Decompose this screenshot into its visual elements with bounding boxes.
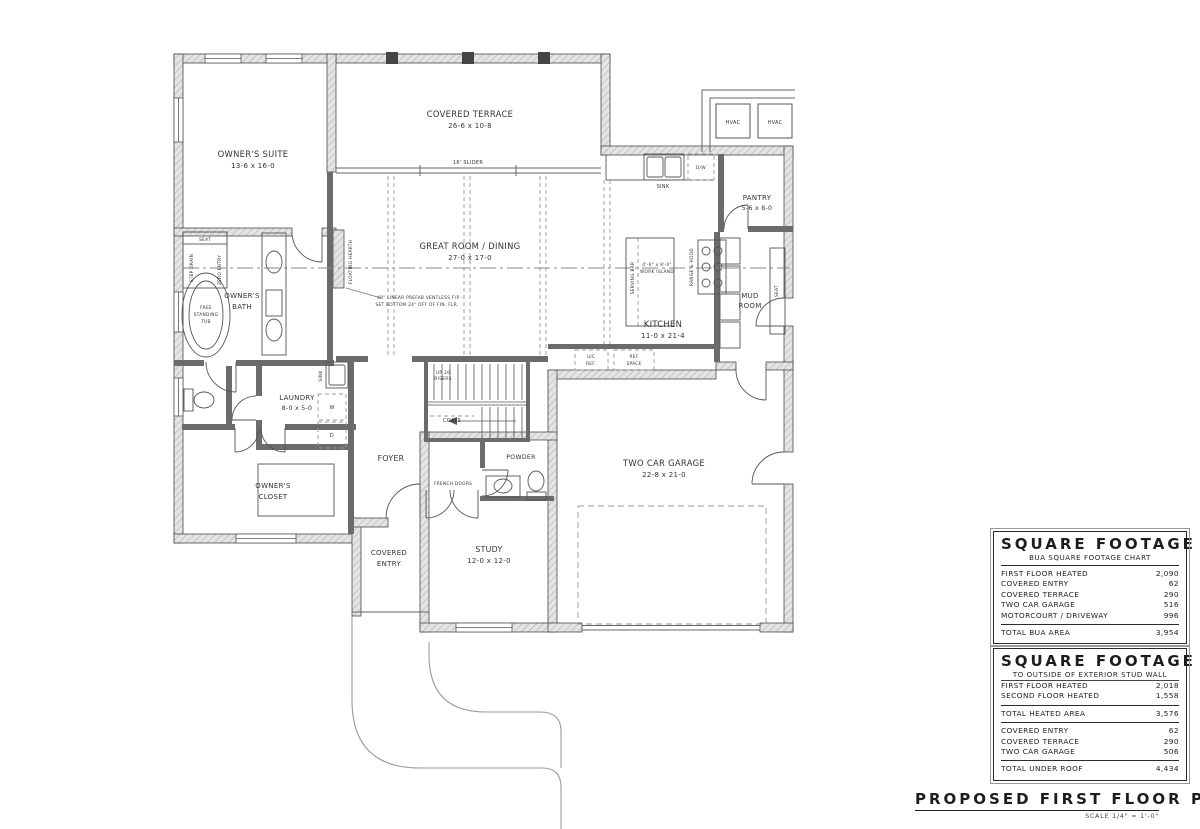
table-row: FIRST FLOOR HEATED 2,018 bbox=[1001, 681, 1179, 691]
mud-seat-label: SEAT bbox=[774, 285, 780, 297]
covered-entry-label-2: ENTRY bbox=[377, 560, 402, 568]
powder-label: POWDER bbox=[506, 454, 536, 461]
title-block: PROPOSED FIRST FLOOR PLAN SCALE 1/4" = 1… bbox=[915, 790, 1159, 820]
covered-terrace-dims: 26-6 x 10-8 bbox=[448, 122, 492, 130]
row-value: 996 bbox=[1164, 611, 1179, 621]
kitchen-dims: 11-0 x 21-4 bbox=[641, 332, 685, 340]
owners-suite-dims: 13-6 x 16-0 bbox=[231, 162, 275, 170]
row-label: FIRST FLOOR HEATED bbox=[1001, 569, 1088, 579]
table-rule bbox=[1001, 565, 1179, 566]
mud-room-label-2: ROOM bbox=[738, 302, 761, 310]
row-label: COVERED TERRACE bbox=[1001, 590, 1079, 600]
owners-bath-label-1: OWNER'S bbox=[224, 292, 260, 300]
step-drain-label: STEP DRAIN bbox=[189, 254, 195, 283]
stud-square-footage-table: SQUARE FOOTAGE TO OUTSIDE OF EXTERIOR ST… bbox=[993, 648, 1187, 781]
kitchen-sink-label: SINK bbox=[657, 184, 670, 190]
garage-dims: 22-8 x 21-0 bbox=[642, 471, 686, 479]
table-row: MOTORCOURT / DRIVEWAY 996 bbox=[1001, 611, 1179, 621]
work-island-label: WORK ISLAND bbox=[640, 269, 674, 275]
row-label: COVERED ENTRY bbox=[1001, 579, 1069, 589]
row-label: SECOND FLOOR HEATED bbox=[1001, 691, 1099, 701]
covered-entry-label-1: COVERED bbox=[371, 549, 407, 557]
kitchen-label: KITCHEN bbox=[644, 319, 682, 329]
stairs-up-label-1: UP 20 bbox=[436, 370, 450, 376]
row-label: FIRST FLOOR HEATED bbox=[1001, 681, 1088, 691]
hvac-label-1: HVAC bbox=[726, 120, 741, 126]
uc-ref-label-2: REF. bbox=[586, 361, 596, 367]
french-doors-label: FRENCH DOORS bbox=[434, 481, 472, 487]
owners-closet-label-1: OWNER'S bbox=[255, 482, 291, 490]
table-subtitle: BUA SQUARE FOOTAGE CHART bbox=[1001, 554, 1179, 562]
total-label: TOTAL BUA AREA bbox=[1001, 628, 1070, 638]
row-value: 62 bbox=[1169, 579, 1179, 589]
table-row: COVERED TERRACE 290 bbox=[1001, 590, 1179, 600]
table-row: SECOND FLOOR HEATED 1,558 bbox=[1001, 691, 1179, 701]
table-row: TWO CAR GARAGE 506 bbox=[1001, 747, 1179, 757]
table-rule bbox=[1001, 624, 1179, 625]
closet-island bbox=[258, 464, 334, 516]
foyer-label: FOYER bbox=[378, 454, 405, 463]
row-label: TWO CAR GARAGE bbox=[1001, 747, 1075, 757]
tub-label-3: TUB bbox=[200, 319, 211, 325]
great-room-label: GREAT ROOM / DINING bbox=[420, 241, 521, 251]
tub-label-2: STANDING bbox=[194, 312, 219, 318]
covered-terrace-label: COVERED TERRACE bbox=[427, 109, 513, 119]
table-rule bbox=[1001, 722, 1179, 723]
uc-ref-label-1: U/C bbox=[587, 354, 596, 360]
total-value: 3,576 bbox=[1156, 709, 1179, 719]
driveway-curves bbox=[352, 616, 561, 829]
row-value: 290 bbox=[1164, 590, 1179, 600]
plan-scale: SCALE 1/4" = 1'-0" bbox=[915, 813, 1159, 820]
table-row: COVERED ENTRY 62 bbox=[1001, 579, 1179, 589]
table-total-row: TOTAL BUA AREA 3,954 bbox=[1001, 628, 1179, 638]
row-label: TWO CAR GARAGE bbox=[1001, 600, 1075, 610]
ref-space-label-1: REF bbox=[629, 354, 638, 360]
total-value: 4,434 bbox=[1156, 764, 1179, 774]
row-value: 506 bbox=[1164, 747, 1179, 757]
windows bbox=[174, 54, 512, 632]
owners-closet-label-2: CLOSET bbox=[259, 493, 288, 501]
row-label: COVERED TERRACE bbox=[1001, 737, 1079, 747]
laundry-sink-label: SINK bbox=[318, 370, 324, 381]
owners-bath-label-2: BATH bbox=[232, 303, 252, 311]
pantry-label: PANTRY bbox=[743, 194, 772, 202]
fireplace-note-line1: 48" LINEAR PREFAB VENTLESS F/P - bbox=[377, 295, 463, 301]
powder-fixtures bbox=[486, 471, 546, 500]
hvac-label-2: HVAC bbox=[768, 120, 783, 126]
laundry-label: LAUNDRY bbox=[279, 394, 315, 402]
tub-label-1: FREE bbox=[200, 305, 212, 311]
fireplace-note-line2: SET BOTTOM 24" OFF OF FIN. FLR. bbox=[375, 302, 458, 308]
plan-title: PROPOSED FIRST FLOOR PLAN bbox=[915, 790, 1159, 811]
garage-label: TWO CAR GARAGE bbox=[622, 458, 705, 468]
bath-fixtures bbox=[182, 232, 286, 411]
table-row: TWO CAR GARAGE 516 bbox=[1001, 600, 1179, 610]
mud-room-label-1: MUD bbox=[741, 292, 758, 300]
table-rule bbox=[1001, 760, 1179, 761]
table-rule bbox=[1001, 705, 1179, 706]
shower-seat-label: SEAT bbox=[199, 237, 211, 243]
great-room-dims: 27-0 x 17-0 bbox=[448, 254, 492, 262]
owners-suite-label: OWNER'S SUITE bbox=[218, 149, 289, 159]
fireplace-note-leader bbox=[346, 288, 381, 298]
range-hood-label: RANGE & HOOD bbox=[689, 248, 695, 286]
dishwasher-label: D/W bbox=[696, 165, 706, 171]
row-value: 516 bbox=[1164, 600, 1179, 610]
bua-square-footage-table: SQUARE FOOTAGE BUA SQUARE FOOTAGE CHART … bbox=[993, 531, 1187, 644]
table-subtitle: TO OUTSIDE OF EXTERIOR STUD WALL bbox=[1001, 671, 1179, 681]
row-value: 1,558 bbox=[1156, 691, 1179, 701]
stairs-up-label-2: RISERS bbox=[434, 376, 451, 382]
row-label: COVERED ENTRY bbox=[1001, 726, 1069, 736]
zero-entry-label: ZERO ENTRY bbox=[217, 255, 223, 285]
row-label: MOTORCOURT / DRIVEWAY bbox=[1001, 611, 1108, 621]
dryer-label: D bbox=[330, 433, 334, 439]
table-title: SQUARE FOOTAGE bbox=[1001, 652, 1179, 670]
table-row: COVERED TERRACE 290 bbox=[1001, 737, 1179, 747]
floating-hearth-label: FLOATING HEARTH bbox=[348, 240, 354, 284]
laundry-fixtures bbox=[326, 362, 348, 388]
interior-walls bbox=[174, 154, 793, 534]
total-value: 3,954 bbox=[1156, 628, 1179, 638]
total-label: TOTAL UNDER ROOF bbox=[1001, 764, 1083, 774]
coats-label: COATS bbox=[443, 418, 461, 424]
table-row: FIRST FLOOR HEATED 2,090 bbox=[1001, 569, 1179, 579]
table-title: SQUARE FOOTAGE bbox=[1001, 535, 1179, 553]
table-total-row: TOTAL HEATED AREA 3,576 bbox=[1001, 709, 1179, 719]
work-island-dims: 4'-0" x 9'-0" bbox=[642, 262, 672, 268]
study-dims: 12-0 x 12-0 bbox=[467, 557, 511, 565]
study-label: STUDY bbox=[475, 545, 502, 554]
serving-bar-label: SERVING BAR bbox=[630, 262, 636, 294]
laundry-dims: 8-0 x 5-0 bbox=[282, 405, 313, 412]
table-row: COVERED ENTRY 62 bbox=[1001, 726, 1179, 736]
row-value: 2,090 bbox=[1156, 569, 1179, 579]
slider-label: 16' SLIDER bbox=[453, 160, 483, 166]
ref-space-label-2: SPACE bbox=[626, 361, 641, 367]
table-total-row: TOTAL UNDER ROOF 4,434 bbox=[1001, 764, 1179, 774]
row-value: 2,018 bbox=[1156, 681, 1179, 691]
row-value: 62 bbox=[1169, 726, 1179, 736]
row-value: 290 bbox=[1164, 737, 1179, 747]
washer-label: W bbox=[329, 405, 334, 411]
total-label: TOTAL HEATED AREA bbox=[1001, 709, 1085, 719]
pantry-dims: 5-6 x 8-0 bbox=[742, 205, 773, 212]
